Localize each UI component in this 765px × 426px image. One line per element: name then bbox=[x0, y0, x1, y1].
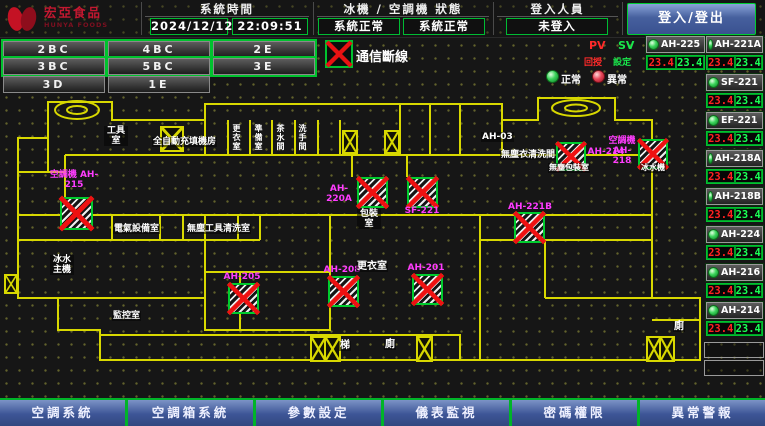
room-label: 無塵包裝室 bbox=[548, 163, 590, 173]
abnormal-led-icon bbox=[592, 70, 605, 83]
room-label: 冰水機 bbox=[640, 163, 666, 173]
logo-icon bbox=[6, 5, 40, 33]
status-led-icon bbox=[648, 39, 659, 50]
ahu-unit-label: AH-220A bbox=[322, 184, 356, 204]
equipment-button-ah-224[interactable]: AH-224 bbox=[706, 226, 763, 243]
equipment-readout: 23.4 23.4 bbox=[706, 55, 763, 70]
chiller-status: 系統正常 bbox=[318, 18, 400, 35]
room-label: 無塵工具清洗室 bbox=[186, 224, 251, 234]
pv-value: 23.4 bbox=[707, 284, 735, 297]
login-user-label: 登入人員 bbox=[497, 1, 618, 17]
pv-value: 23.4 bbox=[707, 132, 735, 145]
room-label: 電氣設備室 bbox=[113, 224, 160, 234]
ahu-unit-label: AH-221B bbox=[506, 202, 554, 212]
status-led-icon bbox=[708, 115, 719, 126]
nav-alarm-button[interactable]: 異常警報 bbox=[640, 400, 765, 426]
login-status: 未登入 bbox=[506, 18, 608, 35]
sv-value: 23.4 bbox=[735, 208, 763, 221]
equipment-button-ah-225[interactable]: AH-225 bbox=[646, 36, 705, 53]
pv-sub-header: 回授 bbox=[584, 55, 602, 68]
status-led-icon bbox=[708, 267, 719, 278]
equipment-button-ah-214[interactable]: AH-214 bbox=[706, 302, 763, 319]
pv-value: 23.4 bbox=[647, 56, 676, 69]
room-label: 廁 bbox=[384, 340, 396, 350]
room-label: 工具室 bbox=[104, 126, 128, 146]
status-led-icon bbox=[708, 39, 713, 50]
equipment-button-ah-218b[interactable]: AH-218B bbox=[706, 188, 763, 205]
room-label: 更衣室 bbox=[356, 262, 388, 272]
nav-parameter-set-button[interactable]: 參數設定 bbox=[256, 400, 381, 426]
login-logout-button[interactable]: 登入/登出 bbox=[627, 3, 756, 35]
ahu-unit-comm-loss[interactable] bbox=[228, 283, 259, 314]
stairs-x-icon bbox=[416, 336, 433, 362]
hmi-screen: 宏亞食品 HUNYA FOODS 系統時間 2024/12/12 22:09:5… bbox=[0, 0, 765, 426]
room-label: 洗手間 bbox=[297, 124, 308, 151]
ahu-unit-comm-loss[interactable] bbox=[357, 177, 388, 208]
equipment-readout: 23.4 23.4 bbox=[706, 321, 763, 336]
floor-button-2bc[interactable]: 2BC bbox=[3, 41, 105, 58]
floor-button-5bc[interactable]: 5BC bbox=[108, 58, 210, 75]
comm-loss-label: 通信斷線 bbox=[356, 46, 408, 65]
floor-button-3bc[interactable]: 3BC bbox=[3, 58, 105, 75]
ac-status: 系統正常 bbox=[403, 18, 485, 35]
equipment-label: AH-216 bbox=[721, 267, 760, 278]
floor-button-3e[interactable]: 3E bbox=[213, 58, 315, 75]
sv-value: 23.4 bbox=[735, 284, 763, 297]
system-clock: 22:09:51 bbox=[232, 18, 308, 35]
logo-subtext: HUNYA FOODS bbox=[44, 19, 108, 31]
equipment-label: AH-225 bbox=[661, 39, 700, 50]
status-led-icon bbox=[708, 229, 719, 240]
ahu-unit-label: AH-205 bbox=[218, 272, 266, 282]
system-date: 2024/12/12 bbox=[150, 18, 228, 35]
equipment-button-ah-218a[interactable]: AH-218A bbox=[706, 150, 763, 167]
sv-value: 23.4 bbox=[735, 170, 763, 183]
equipment-button-ah-216[interactable]: AH-216 bbox=[706, 264, 763, 281]
sv-value: 23.4 bbox=[735, 56, 763, 69]
bottom-nav-bar: 空調系統 空調箱系統 參數設定 儀表監視 密碼權限 異常警報 bbox=[0, 398, 765, 426]
logo-text: 宏亞食品 bbox=[44, 7, 108, 19]
nav-meter-monitor-button[interactable]: 儀表監視 bbox=[384, 400, 509, 426]
comm-loss-icon bbox=[325, 40, 353, 68]
sv-value: 23.4 bbox=[735, 322, 763, 335]
equipment-button-ef-221[interactable]: EF-221 bbox=[706, 112, 763, 129]
shaft-x-icon bbox=[4, 274, 18, 294]
equipment-readout: 23.4 23.4 bbox=[706, 93, 763, 108]
status-led-icon bbox=[708, 153, 713, 164]
company-logo: 宏亞食品 HUNYA FOODS bbox=[6, 3, 138, 34]
ahu-unit-comm-loss[interactable] bbox=[407, 177, 438, 208]
ahu-unit-label: SF-221 bbox=[402, 206, 442, 216]
room-label: 監控室 bbox=[112, 311, 141, 321]
equipment-label: AH-218B bbox=[715, 191, 761, 202]
equipment-label: AH-218A bbox=[715, 153, 761, 164]
ahu-unit-comm-loss[interactable] bbox=[328, 276, 359, 307]
sv-value: 23.4 bbox=[735, 132, 763, 145]
equipment-readout: 23.4 23.4 bbox=[706, 131, 763, 146]
sv-value: 23.4 bbox=[735, 246, 763, 259]
nav-ac-system-button[interactable]: 空調系統 bbox=[0, 400, 125, 426]
empty-slot bbox=[704, 342, 764, 358]
pv-value: 23.4 bbox=[707, 94, 735, 107]
room-label: 冰水 主機 bbox=[50, 255, 74, 275]
sv-value: 23.4 bbox=[676, 56, 705, 69]
sv-header: SV bbox=[618, 39, 634, 52]
room-label: 全自動充填機房 bbox=[152, 137, 217, 147]
pv-value: 23.4 bbox=[707, 208, 735, 221]
equipment-readout: 23.4 23.4 bbox=[646, 55, 705, 70]
room-label: 更衣室 bbox=[231, 124, 242, 151]
top-bar: 宏亞食品 HUNYA FOODS 系統時間 2024/12/12 22:09:5… bbox=[0, 0, 765, 38]
normal-label: 正常 bbox=[561, 71, 581, 86]
equipment-label: SF-221 bbox=[721, 77, 758, 88]
shaft-x-icon bbox=[342, 130, 358, 154]
equipment-label: AH-221A bbox=[715, 39, 761, 50]
room-label: 廁 bbox=[673, 322, 685, 332]
pv-value: 23.4 bbox=[707, 170, 735, 183]
room-label: AH-03 bbox=[481, 132, 514, 142]
machine-status-label: 冰機 / 空調機 狀態 bbox=[317, 1, 489, 17]
equipment-readout: 23.4 23.4 bbox=[706, 169, 763, 184]
equipment-button-sf-221[interactable]: SF-221 bbox=[706, 74, 763, 91]
room-label: 茶水間 bbox=[275, 124, 286, 151]
sv-value: 23.4 bbox=[735, 94, 763, 107]
shaft-x-icon bbox=[384, 130, 400, 154]
floor-button-2e[interactable]: 2E bbox=[213, 41, 315, 58]
room-label: 準備室 bbox=[253, 124, 264, 151]
ahu-unit-comm-loss[interactable] bbox=[514, 212, 545, 243]
equipment-label: AH-224 bbox=[721, 229, 760, 240]
sv-sub-header: 設定 bbox=[613, 55, 631, 68]
status-led-icon bbox=[708, 77, 719, 88]
pv-value: 23.4 bbox=[707, 56, 735, 69]
pv-value: 23.4 bbox=[707, 322, 735, 335]
nav-ahu-system-button[interactable]: 空調箱系統 bbox=[128, 400, 253, 426]
equipment-label: EF-221 bbox=[721, 115, 757, 126]
floor-button-4bc[interactable]: 4BC bbox=[108, 41, 210, 58]
normal-led-icon bbox=[546, 70, 559, 83]
system-time-label: 系統時間 bbox=[145, 1, 309, 17]
equipment-label: AH-214 bbox=[721, 305, 760, 316]
ahu-unit-label: 空調機 AH-218 bbox=[606, 136, 638, 166]
equipment-readout: 23.4 23.4 bbox=[706, 283, 763, 298]
ahu-unit-comm-loss[interactable] bbox=[412, 274, 443, 305]
pv-value: 23.4 bbox=[707, 246, 735, 259]
room-label: 包裝室 bbox=[357, 209, 381, 229]
ahu-unit-label: 空調機 AH-215 bbox=[48, 170, 100, 190]
equipment-readout: 23.4 23.4 bbox=[706, 245, 763, 260]
pv-header: PV bbox=[589, 39, 606, 52]
abnormal-label: 異常 bbox=[607, 71, 627, 86]
toilet-x-icon bbox=[659, 336, 675, 362]
nav-password-auth-button[interactable]: 密碼權限 bbox=[512, 400, 637, 426]
ahu-unit-comm-loss[interactable] bbox=[60, 197, 93, 230]
equipment-button-ah-221a[interactable]: AH-221A bbox=[706, 36, 763, 53]
status-led-icon bbox=[708, 191, 713, 202]
room-label: 梯 bbox=[339, 341, 351, 351]
room-label: 無塵衣清洗間 bbox=[500, 150, 556, 160]
empty-slot bbox=[704, 360, 764, 376]
equipment-readout: 23.4 23.4 bbox=[706, 207, 763, 222]
ahu-unit-label: AH-201 bbox=[402, 263, 450, 273]
status-led-icon bbox=[708, 305, 719, 316]
